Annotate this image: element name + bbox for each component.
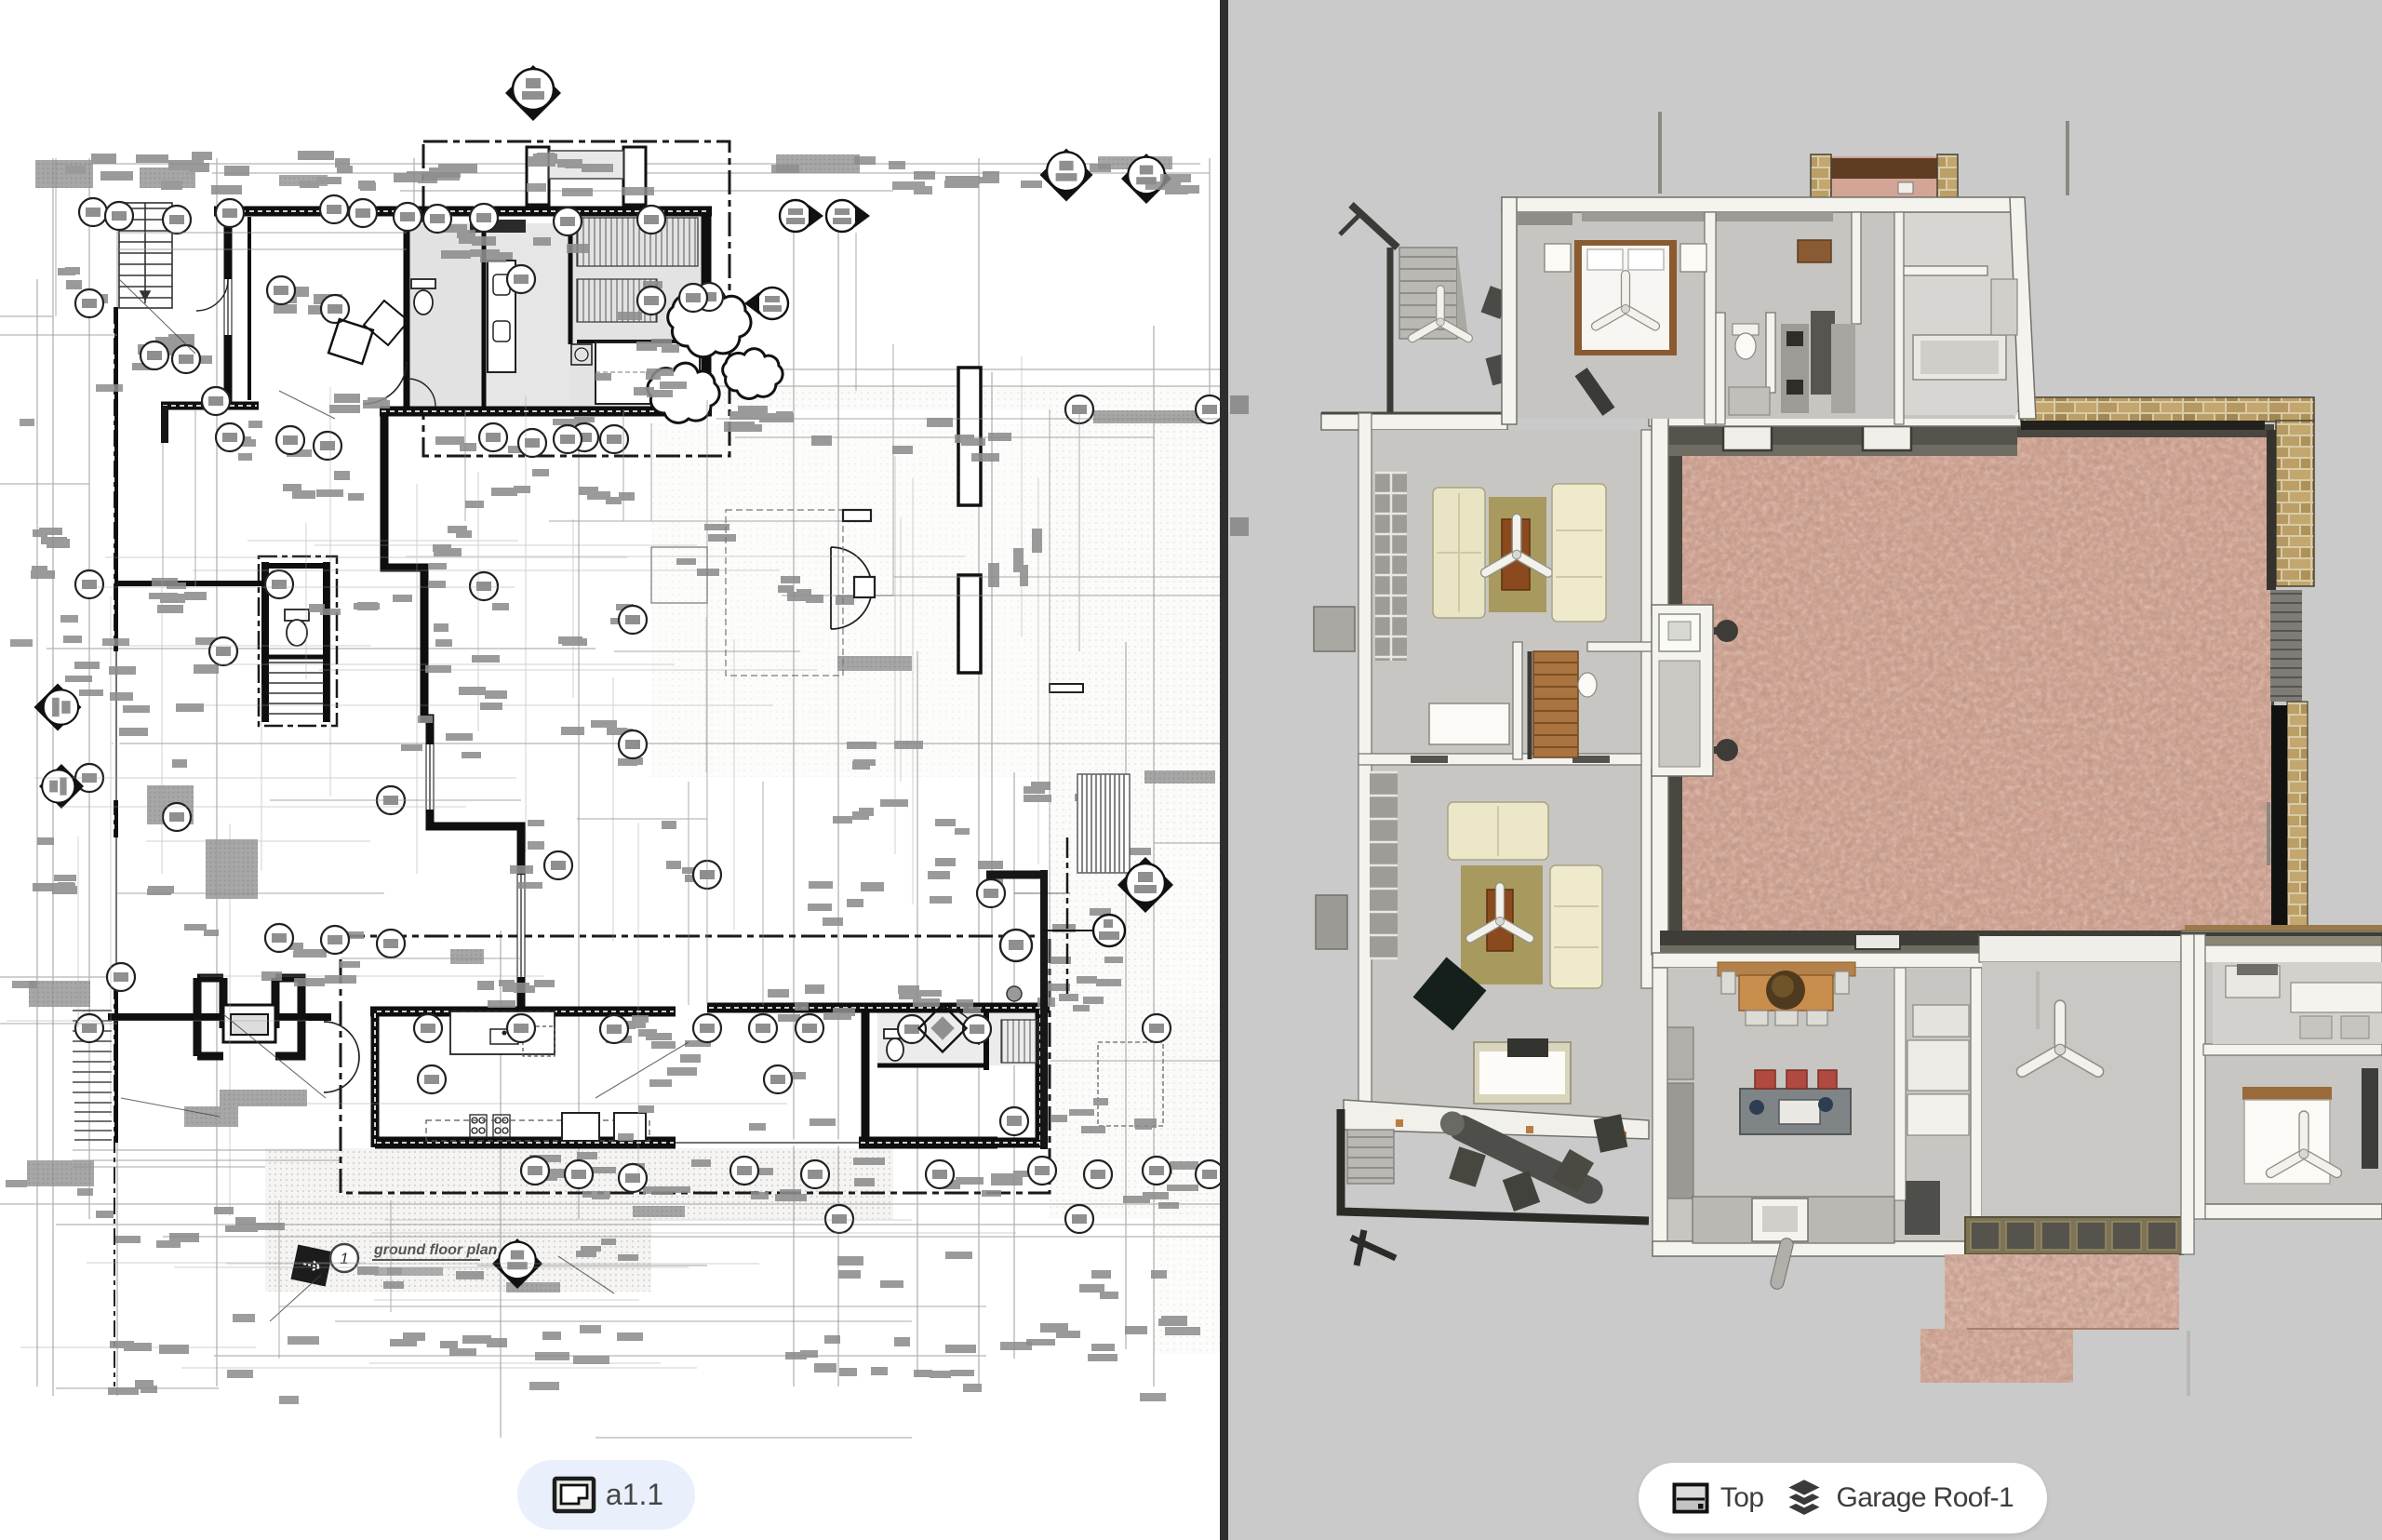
svg-text:1: 1 (340, 1250, 348, 1267)
svg-text:ground floor plan: ground floor plan (373, 1242, 498, 1258)
